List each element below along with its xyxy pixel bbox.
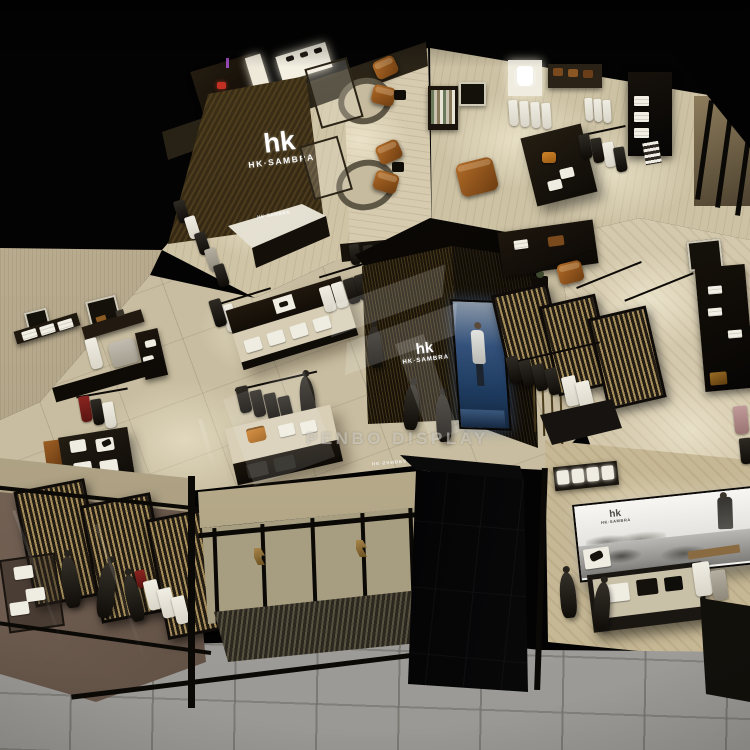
lit-case xyxy=(586,467,599,482)
fabric-swatches xyxy=(431,90,455,124)
display-pad xyxy=(243,336,263,353)
hanging-shirt xyxy=(593,99,603,123)
hanging-garment xyxy=(739,437,750,464)
hanging-shirt xyxy=(584,98,594,122)
dark-display-book xyxy=(636,578,659,596)
leather-bag xyxy=(583,70,593,78)
folded-shirts-stack xyxy=(634,96,649,106)
storefront-corner-post xyxy=(188,476,195,708)
hanging-shirt xyxy=(541,103,552,130)
hanging-shirt xyxy=(519,101,530,128)
display-pad xyxy=(312,315,332,332)
hanging-shirt xyxy=(530,102,541,129)
runway-model-legs xyxy=(476,364,485,386)
folded-shirts-stack xyxy=(513,239,528,250)
gold-gift-boxes xyxy=(709,371,727,385)
folded-shirts-stack xyxy=(708,307,723,316)
orange-bag xyxy=(542,152,556,163)
folded-shirts-stack xyxy=(634,112,649,122)
billboard-model xyxy=(717,497,733,530)
screen-floor-glow xyxy=(460,409,505,429)
display-pad xyxy=(289,322,309,339)
folded-shirts-stack xyxy=(634,128,649,138)
prop-sheet xyxy=(9,601,30,617)
wall-art-frame xyxy=(459,82,486,106)
runway-model-coat xyxy=(471,330,486,364)
display-pad xyxy=(266,329,286,346)
watermark-text: PENBO DISPLAY xyxy=(306,429,489,449)
folded-shirts-stack xyxy=(728,329,743,338)
store-rendering: hk HK·SAMBRA HK·SAMBRA xyxy=(0,0,750,750)
hanging-garment xyxy=(733,405,750,434)
runway-model-head xyxy=(474,322,482,329)
display-pad xyxy=(69,439,87,453)
side-table xyxy=(394,90,406,100)
dark-display-item xyxy=(664,576,684,592)
red-display-item xyxy=(217,82,226,89)
lit-case xyxy=(601,465,614,480)
leather-bag xyxy=(568,69,578,77)
hanging-shirt xyxy=(602,100,612,124)
tshirt-on-panel xyxy=(517,66,533,86)
folded-shirts-stack xyxy=(708,285,723,294)
lit-case xyxy=(571,468,584,483)
violet-display-item xyxy=(226,58,229,68)
leather-bag xyxy=(553,68,563,76)
side-table xyxy=(392,162,404,172)
hanging-shirt xyxy=(508,100,519,127)
prop-sheet xyxy=(13,565,34,581)
lit-case xyxy=(556,470,569,485)
